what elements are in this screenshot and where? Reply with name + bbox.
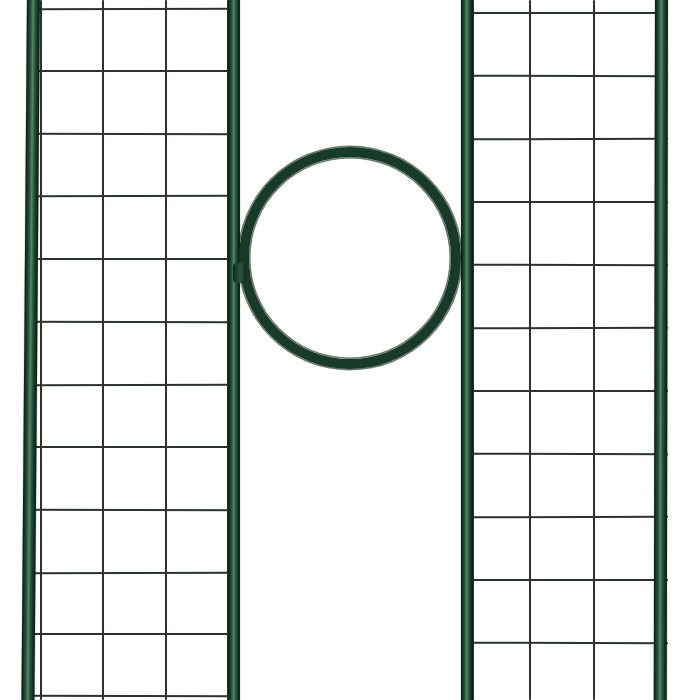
mesh-wire-horizontal [463,390,668,392]
mesh-wire-horizontal [463,264,668,267]
mesh-wire-vertical [529,0,531,700]
mesh-wire-horizontal [463,642,668,645]
mesh-wire-horizontal [463,453,668,456]
mesh-wire-horizontal [463,201,668,203]
trellis-product-photo [0,0,700,700]
mesh-wire-horizontal [463,138,668,141]
mesh-wire-horizontal [463,579,668,581]
mesh-wire-horizontal [463,516,668,519]
frame-tube [461,0,473,700]
frame-tube [654,0,668,700]
mesh-wire-horizontal [463,75,668,78]
mesh-wire-horizontal [463,327,668,330]
mesh-wire-horizontal [463,12,668,14]
ring-weld-joint [233,263,246,283]
center-ring [239,147,461,369]
mesh-wire-vertical [593,0,595,700]
